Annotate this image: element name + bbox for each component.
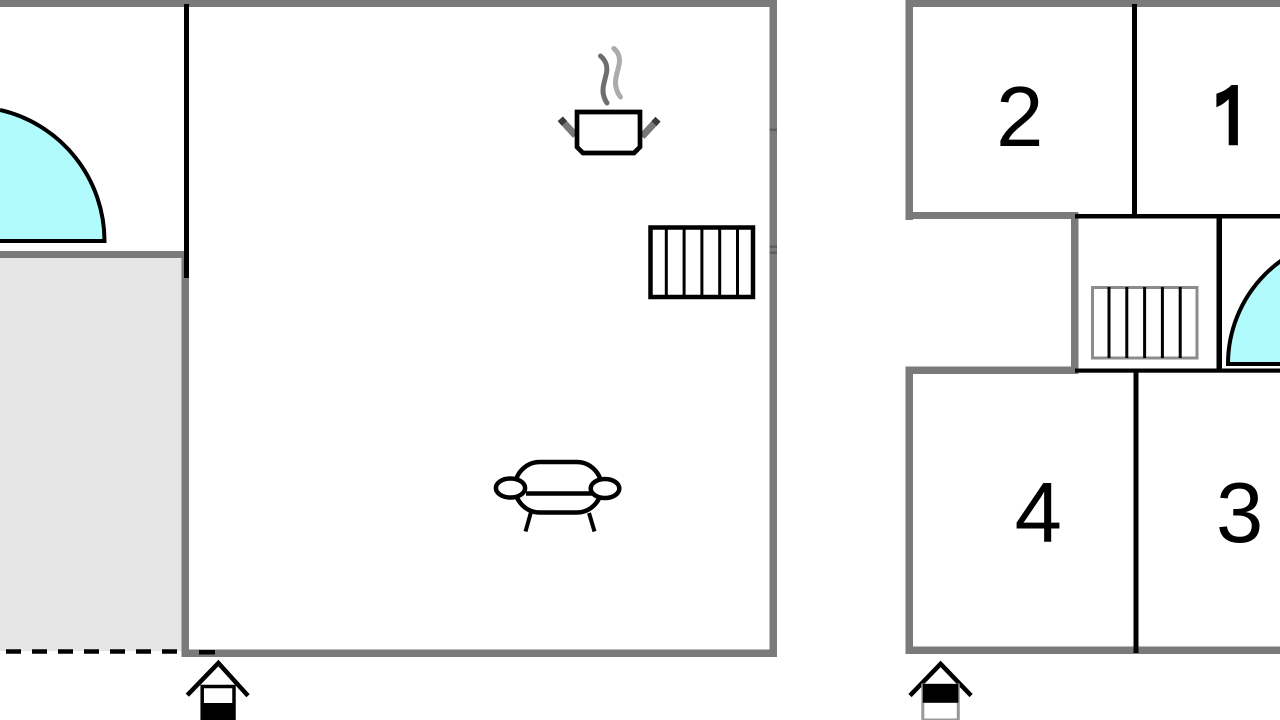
svg-text:2: 2 xyxy=(996,70,1043,165)
svg-text:3: 3 xyxy=(1216,466,1263,561)
svg-text:4: 4 xyxy=(1015,466,1062,561)
